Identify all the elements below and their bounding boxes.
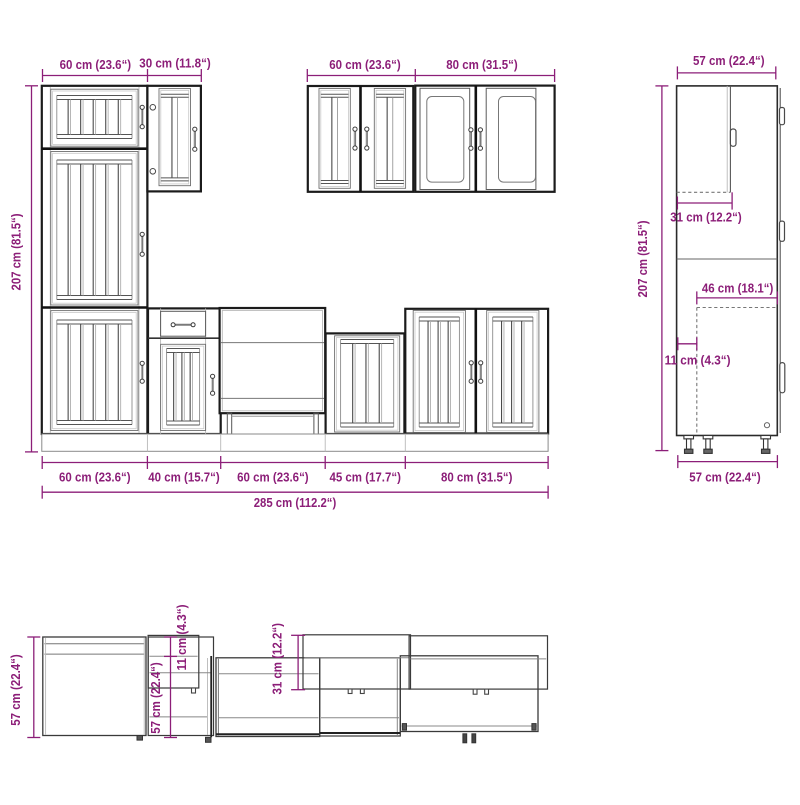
svg-text:45 cm (17.7“): 45 cm (17.7“) bbox=[329, 470, 401, 485]
svg-text:60 cm (23.6“): 60 cm (23.6“) bbox=[237, 470, 309, 485]
svg-text:31 cm (12.2“): 31 cm (12.2“) bbox=[269, 623, 284, 695]
svg-text:46 cm (18.1“): 46 cm (18.1“) bbox=[702, 280, 774, 295]
svg-text:285 cm (112.2“): 285 cm (112.2“) bbox=[254, 495, 337, 510]
svg-text:40 cm (15.7“): 40 cm (15.7“) bbox=[148, 470, 220, 485]
svg-text:11 cm (4.3“): 11 cm (4.3“) bbox=[174, 605, 189, 671]
svg-text:80 cm (31.5“): 80 cm (31.5“) bbox=[446, 57, 518, 72]
svg-text:207 cm (81.5“): 207 cm (81.5“) bbox=[635, 221, 650, 298]
svg-text:57 cm (22.4“): 57 cm (22.4“) bbox=[148, 662, 163, 734]
svg-text:57 cm (22.4“): 57 cm (22.4“) bbox=[689, 470, 761, 485]
svg-text:207 cm (81.5“): 207 cm (81.5“) bbox=[9, 214, 24, 291]
svg-text:57 cm (22.4“): 57 cm (22.4“) bbox=[8, 654, 23, 726]
svg-text:60 cm (23.6“): 60 cm (23.6“) bbox=[59, 470, 131, 485]
svg-text:11 cm (4.3“): 11 cm (4.3“) bbox=[665, 352, 731, 367]
svg-text:57 cm (22.4“): 57 cm (22.4“) bbox=[693, 53, 765, 68]
svg-text:80 cm (31.5“): 80 cm (31.5“) bbox=[441, 470, 513, 485]
svg-text:60 cm (23.6“): 60 cm (23.6“) bbox=[60, 57, 132, 72]
svg-text:31 cm (12.2“): 31 cm (12.2“) bbox=[670, 210, 742, 225]
svg-text:30 cm (11.8“): 30 cm (11.8“) bbox=[139, 55, 211, 70]
svg-text:60 cm (23.6“): 60 cm (23.6“) bbox=[329, 57, 401, 72]
